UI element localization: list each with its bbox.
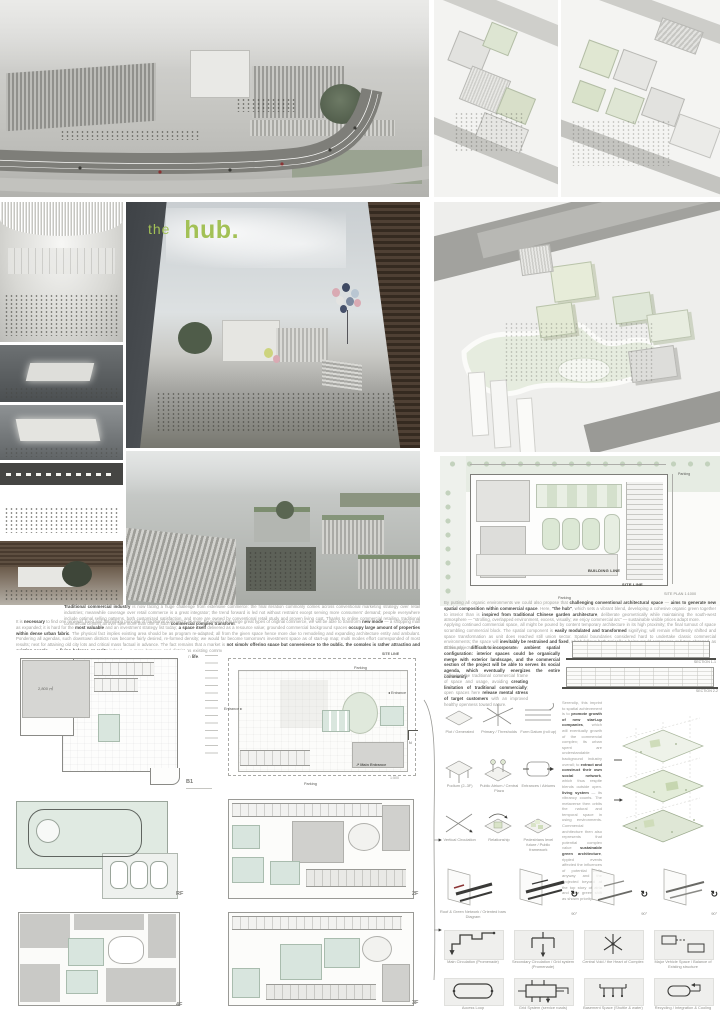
axon-diagram-proposed xyxy=(561,0,720,197)
plan-rf-label: RF xyxy=(176,891,183,897)
project-title-main: hub. xyxy=(184,216,239,244)
gray-wing xyxy=(382,805,410,851)
running-track-graphic xyxy=(0,0,429,197)
circulation-caption: Major Vehicle Space / Balance of Existin… xyxy=(650,960,716,970)
crowd xyxy=(4,387,119,399)
circulation-path-graphic xyxy=(514,930,572,958)
f1-main-entrance-label: ↗ Main Entrance xyxy=(356,762,386,767)
gallery-levels xyxy=(8,248,115,274)
market-stalls xyxy=(248,551,314,589)
gray-wing xyxy=(382,964,410,1002)
gray-room xyxy=(20,914,70,948)
program-legend xyxy=(205,655,218,760)
roof-court xyxy=(150,861,168,889)
diagram-hatch-icon xyxy=(519,700,557,730)
crowd xyxy=(4,507,119,533)
circulation-cell: Secondary Circulation / Grid system (Pro… xyxy=(510,928,580,974)
plane-axon-graphic xyxy=(650,864,716,910)
floor-plan-3f: 3F xyxy=(222,908,422,1012)
ramp-tab xyxy=(150,768,180,785)
axon-diagram-existing xyxy=(434,0,558,197)
void-court xyxy=(348,823,380,851)
concept-cell: Public Atrium / Central Plaza xyxy=(479,754,518,808)
gray-room xyxy=(20,964,60,1002)
balloon xyxy=(336,296,344,305)
crowd xyxy=(4,589,119,601)
concept-caption: Primary / Thresholds xyxy=(479,730,518,735)
void-court xyxy=(362,936,392,962)
f1-entrance-left-label: Entrance ▸ xyxy=(224,706,242,711)
void-court xyxy=(108,936,144,964)
project-title: the hub. xyxy=(148,216,239,245)
lit-building xyxy=(16,419,101,441)
north-arrow-icon: N xyxy=(408,730,418,740)
building-section-2: SECTION 2-2 xyxy=(562,667,718,693)
garden-pod xyxy=(562,518,580,550)
site-plan: Parking BUILDING LINE SITE LINE SITE PLA… xyxy=(440,456,720,606)
floor-plan-b1: 2,800 ㎡ xyxy=(10,650,188,788)
green-room xyxy=(68,938,104,966)
green-room xyxy=(280,944,322,980)
plane-axon-graphic xyxy=(580,864,646,910)
ribbed-pavilion xyxy=(276,328,328,362)
title-space xyxy=(175,221,180,237)
plane-axon-graphic xyxy=(510,864,576,910)
f1-parking-bottom-label: Parking xyxy=(304,782,317,786)
concept-caption: Public Atrium / Central Plaza xyxy=(479,784,518,794)
diagram-entrance-icon xyxy=(519,754,557,784)
roof-court xyxy=(110,861,128,889)
stairs xyxy=(322,359,362,391)
diagram-podium-icon xyxy=(440,754,478,784)
circulation-path-graphic xyxy=(654,978,712,1004)
concept-cell: Podium (2–3F) xyxy=(440,754,479,808)
concept-caption: Pedestrians level future / Public framew… xyxy=(519,838,558,853)
f1-site-line-label: SITE LINE xyxy=(382,652,399,656)
core-block xyxy=(98,714,120,742)
circulation-path-graphic xyxy=(584,930,642,958)
concept-diagram-grid: Plot / Generated Primary / Thresholds Fo… xyxy=(440,700,558,862)
slatted-roof xyxy=(126,527,236,605)
render-atrium-interior xyxy=(0,202,123,342)
section-1-label: SECTION 1-1 xyxy=(566,660,716,664)
plan-block xyxy=(476,480,530,522)
circulation-caption: Access Loop xyxy=(440,1006,506,1011)
roof-court xyxy=(130,861,148,889)
balloon xyxy=(354,299,361,307)
rotation-degree: 90° xyxy=(571,911,577,916)
floor-plan-rf: RF xyxy=(10,795,188,904)
plaza-crowd xyxy=(156,392,396,432)
exploded-axon-graphic xyxy=(606,700,720,862)
rotation-degree: 90° xyxy=(641,911,647,916)
ribbed-cube xyxy=(518,244,554,276)
balloon xyxy=(273,355,280,363)
green-room xyxy=(270,861,300,885)
room-band xyxy=(306,869,406,887)
circulation-caption: Basement Space (Shuttle & water) xyxy=(580,1006,646,1011)
render-exterior-dusk-2 xyxy=(0,405,123,460)
caption-lines xyxy=(186,788,212,795)
parking-area-label: 2,800 ㎡ xyxy=(38,686,53,692)
concept-cell: Primary / Thresholds xyxy=(479,700,518,754)
building-block xyxy=(613,49,658,91)
concept-caption: Plot / Generated xyxy=(440,730,479,735)
concept-caption: Form Datum (roll up) xyxy=(519,730,558,735)
concept-cell: Entrances / Atriums xyxy=(519,754,558,808)
lit-building xyxy=(26,363,94,381)
building-block xyxy=(669,113,720,158)
tree-column xyxy=(442,486,454,596)
axon-people xyxy=(504,322,654,382)
circulation-caption: Grid System (service roads) xyxy=(510,1006,576,1011)
circulation-diagram-row-1: Main Circulation (Promenade) Secondary C… xyxy=(440,928,720,974)
concept-caption: Vertical Circulation xyxy=(440,838,479,843)
site-plan-caption: SITE PLAN 1:1000 xyxy=(664,592,696,596)
far-lawn xyxy=(340,493,420,507)
render-plaza-hub: the hub. xyxy=(126,202,420,448)
wood-ceiling xyxy=(0,541,123,567)
dimension-line xyxy=(470,464,666,465)
green-room xyxy=(324,938,360,968)
building-block-green xyxy=(579,39,619,78)
site-line-label: SITE LINE xyxy=(622,582,643,587)
diagram-circulation-icon xyxy=(440,808,478,838)
balloon xyxy=(342,283,350,292)
render-exterior-dusk-1 xyxy=(0,345,123,402)
balloon xyxy=(351,289,359,298)
building-block-green xyxy=(572,80,607,112)
concept-caption: Relationship xyxy=(479,838,518,843)
rotate-icon: ↻ xyxy=(710,889,718,899)
tree xyxy=(62,561,92,587)
plane-axon-caption: Roof & Green Network / Oriented bars Dia… xyxy=(440,910,506,920)
green-roof-block xyxy=(322,515,384,554)
parking-count-label: Parking xyxy=(678,472,690,476)
green-cube xyxy=(550,261,597,302)
green-room xyxy=(232,857,264,883)
rotation-indicator: ↻ 90° xyxy=(640,884,648,920)
plane-axon-cell: ↻ 90° xyxy=(510,864,580,926)
circulation-cell: Central Void / the Heart of Complex xyxy=(580,928,650,974)
rotation-indicator: ↻ 90° xyxy=(710,884,718,920)
small-rooms xyxy=(94,662,154,676)
green-room xyxy=(232,968,260,998)
render-aerial-rooftops xyxy=(126,451,420,605)
f1-scale-note: 1:500 xyxy=(390,776,399,780)
section-drawing xyxy=(572,641,710,658)
room-band xyxy=(232,916,402,930)
concept-caption: Entrances / Atriums xyxy=(519,784,558,789)
plane-axon-cell: ↻ 90° xyxy=(580,864,650,926)
building-line-label: BUILDING LINE xyxy=(588,568,620,573)
parking-strip xyxy=(626,482,663,580)
fog-overlay xyxy=(126,451,420,495)
plane-axon-cell: ↻ 90° xyxy=(650,864,720,926)
diagram-relationship-icon xyxy=(479,808,517,838)
concept-cell: Vertical Circulation xyxy=(440,808,479,862)
green-roof-block xyxy=(358,555,420,589)
rotation-degree: 90° xyxy=(711,911,717,916)
garden-pod xyxy=(604,514,620,554)
f1-entrance-right-label: ◂ Entrance xyxy=(388,690,406,695)
crowd xyxy=(4,447,119,457)
rotate-icon: ↻ xyxy=(570,889,578,899)
balloon-string xyxy=(347,310,348,344)
circulation-path-graphic xyxy=(654,930,712,958)
plan-2f-label: 2F xyxy=(412,891,418,897)
plane-axon-cell: Roof & Green Network / Oriented bars Dia… xyxy=(440,864,510,926)
exploded-axon-diagram xyxy=(606,700,720,862)
plane-axon-graphic xyxy=(440,864,506,910)
diagram-axes-icon xyxy=(479,700,517,730)
circulation-path-graphic xyxy=(584,978,642,1004)
gray-room xyxy=(148,914,176,958)
circulation-cell: Recycling / Integration & Cooling xyxy=(650,976,720,1018)
circulation-cell: Access Loop xyxy=(440,976,510,1018)
concept-cell: Relationship xyxy=(479,808,518,862)
room-band xyxy=(266,984,376,1000)
garden-pod xyxy=(542,518,560,550)
concept-cell: Plot / Generated xyxy=(440,700,479,754)
plan-b1-label: B1 xyxy=(186,779,193,785)
circulation-path-graphic xyxy=(444,978,502,1004)
tree xyxy=(178,322,212,354)
roof-pool xyxy=(36,819,60,843)
parking-zone xyxy=(22,660,90,718)
green-court-cells xyxy=(322,710,350,732)
circulation-cell: Major Vehicle Space / Balance of Existin… xyxy=(650,928,720,974)
circulation-caption: Main Circulation (Promenade) xyxy=(440,960,506,965)
diagram-atrium-icon xyxy=(479,754,517,784)
retail-band xyxy=(240,750,310,766)
circulation-caption: Recycling / Integration & Cooling xyxy=(650,1006,716,1011)
plan-3f-label: 3F xyxy=(412,1000,418,1006)
balloon xyxy=(264,348,273,358)
green-roof-strip xyxy=(536,484,622,508)
floor-plan-2f: 2F xyxy=(222,795,422,904)
rotation-indicator: ↻ 90° xyxy=(570,884,578,920)
circulation-path-graphic xyxy=(444,930,502,958)
circulation-caption: Secondary Circulation / Grid system (Pro… xyxy=(510,960,576,970)
axon-texture xyxy=(454,112,524,152)
crowd xyxy=(4,294,119,336)
green-room xyxy=(380,706,404,726)
section-drawing xyxy=(566,667,714,687)
circulation-caption: Central Void / the Heart of Complex xyxy=(580,960,646,965)
gray-room xyxy=(74,914,144,930)
concept-caption: Podium (2–3F) xyxy=(440,784,479,789)
concept-cell: Pedestrians level future / Public framew… xyxy=(519,808,558,862)
green-room xyxy=(66,970,98,994)
diagram-slab-icon xyxy=(440,700,478,730)
hero-aerial-render xyxy=(0,0,429,197)
dimension-line xyxy=(672,474,673,584)
section-2-label: SECTION 2-2 xyxy=(562,689,718,693)
render-wood-canopy xyxy=(0,541,123,605)
room-band xyxy=(232,803,382,817)
building-section-1: SECTION 1-1 xyxy=(566,641,716,664)
circulation-cell: Grid System (service roads) xyxy=(510,976,580,1018)
circulation-diagram-row-2: Access Loop Grid System (service roads) … xyxy=(440,976,720,1018)
concept-paragraph-1: By putting all organic environments we c… xyxy=(444,600,716,623)
circulation-cell: Main Circulation (Promenade) xyxy=(440,928,510,974)
project-title-prefix: the xyxy=(148,221,170,237)
skylight-ribs xyxy=(0,202,123,236)
concept-cell: Form Datum (roll up) xyxy=(519,700,558,754)
garden-pod xyxy=(582,518,600,550)
balloon xyxy=(346,297,354,306)
ceiling-lights xyxy=(6,473,116,476)
circulation-cell: Basement Space (Shuttle & water) xyxy=(580,976,650,1018)
tree xyxy=(276,501,294,519)
small-rooms xyxy=(94,678,138,692)
plan-4f-label: 4F xyxy=(176,1002,182,1008)
green-room xyxy=(232,825,260,849)
rotate-icon: ↻ xyxy=(640,889,648,899)
axon-masterplan-large xyxy=(434,202,720,452)
render-market-hall xyxy=(0,463,123,538)
diagram-framework-icon xyxy=(519,808,557,838)
competition-board: the hub. xyxy=(0,0,720,1018)
rotation-sequence-row: Roof & Green Network / Oriented bars Dia… xyxy=(440,864,720,926)
floor-plan-1f: SITE LINE Parking Entrance ▸ ◂ Entrance … xyxy=(222,646,422,790)
gray-block xyxy=(292,821,344,863)
balloon xyxy=(340,305,347,313)
gray-room xyxy=(106,968,176,1002)
floor-plan-4f: 4F xyxy=(10,908,188,1012)
anchor-store-outline xyxy=(280,680,328,728)
circulation-path-graphic xyxy=(514,978,572,1004)
plan-b1-caption: B1 xyxy=(186,770,216,795)
axon-texture xyxy=(571,120,671,166)
